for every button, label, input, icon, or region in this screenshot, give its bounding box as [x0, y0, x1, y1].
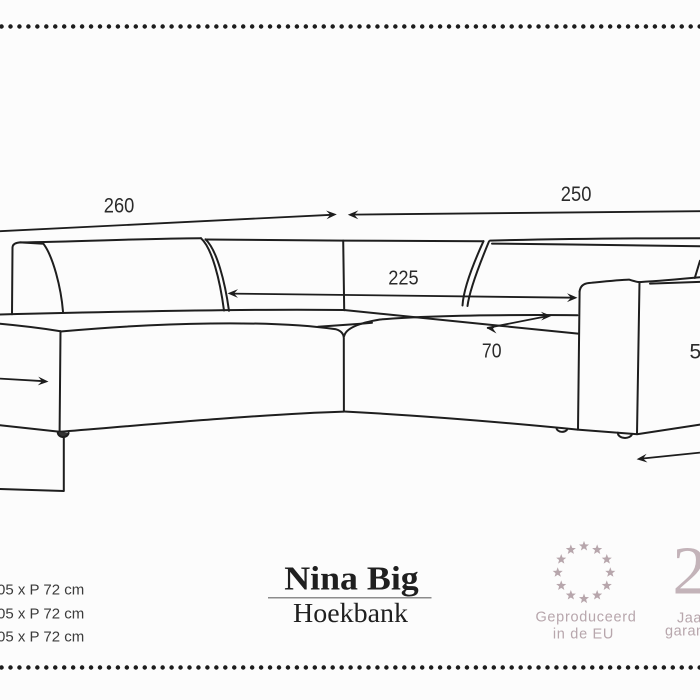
svg-text:05 x P 72 cm: 05 x P 72 cm: [0, 582, 84, 599]
svg-text:05 x P 72 cm: 05 x P 72 cm: [0, 606, 84, 623]
svg-text:25: 25: [673, 533, 700, 609]
svg-text:Hoekbank: Hoekbank: [293, 598, 409, 628]
svg-text:55: 55: [690, 341, 700, 364]
svg-text:Nina Big: Nina Big: [284, 561, 419, 598]
svg-text:garantie: garantie: [665, 624, 700, 640]
svg-text:05 x P 72 cm: 05 x P 72 cm: [0, 629, 84, 646]
svg-text:260: 260: [104, 194, 135, 217]
svg-text:in de EU: in de EU: [553, 627, 614, 643]
svg-text:Geproduceerd: Geproduceerd: [535, 610, 636, 626]
svg-text:225: 225: [388, 268, 418, 290]
svg-text:70: 70: [482, 341, 502, 363]
svg-text:250: 250: [561, 183, 592, 206]
